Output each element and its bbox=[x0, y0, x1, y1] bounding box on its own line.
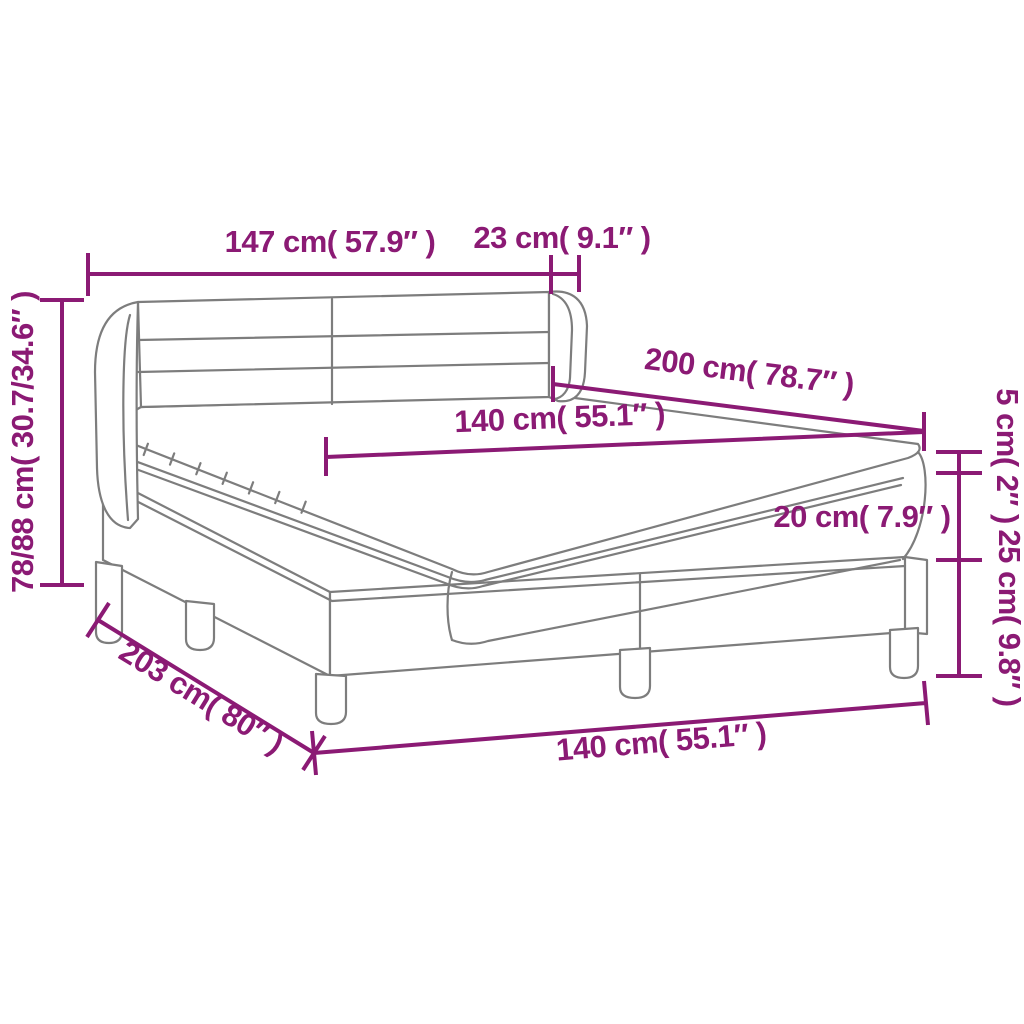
headboard-left-wing bbox=[95, 302, 138, 528]
label-topper-thickness: 5 cm( 2″ ) bbox=[990, 388, 1024, 524]
dimension-line-headboard-width bbox=[88, 253, 579, 296]
dimension-line-height-stack bbox=[936, 452, 982, 676]
label-base-width: 140 cm( 55.1″ ) bbox=[555, 715, 768, 767]
bed-leg-front-middle bbox=[620, 648, 650, 698]
diagram-canvas: 147 cm( 57.9″ ) 23 cm( 9.1″ ) 78/88 cm( … bbox=[0, 0, 1024, 1024]
label-total-height: 78/88 cm( 30.7/34.6″ ) bbox=[5, 291, 40, 593]
label-headboard-width: 147 cm( 57.9″ ) bbox=[225, 224, 436, 259]
label-base-height: 25 cm( 9.8″ ) bbox=[992, 529, 1024, 706]
bed-leg-right bbox=[890, 628, 918, 678]
label-base-length: 203 cm( 80″ ) bbox=[113, 633, 290, 760]
label-headboard-side-depth: 23 cm( 9.1″ ) bbox=[473, 220, 650, 255]
headboard-panel bbox=[138, 292, 549, 407]
bed-leg-front-left bbox=[186, 601, 214, 650]
dimension-line-total-height bbox=[40, 300, 84, 585]
label-bed-length: 200 cm( 78.7″ ) bbox=[643, 341, 856, 402]
label-mattress-thickness: 20 cm( 7.9″ ) bbox=[773, 499, 950, 534]
bed-dimension-diagram: 147 cm( 57.9″ ) 23 cm( 9.1″ ) 78/88 cm( … bbox=[0, 0, 1024, 1024]
bed-leg-front-corner bbox=[316, 674, 346, 724]
